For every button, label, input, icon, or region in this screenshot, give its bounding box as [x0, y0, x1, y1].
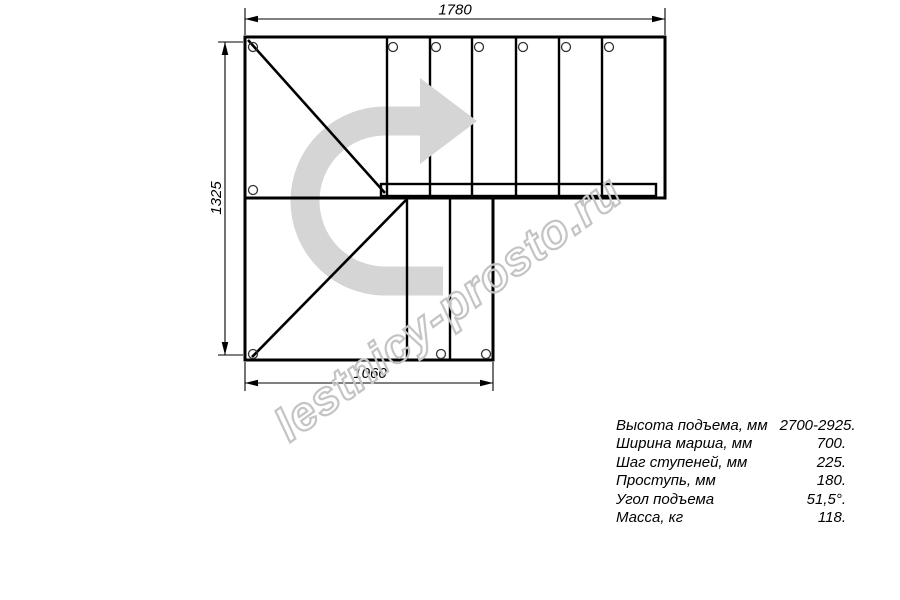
dimension-left: 1325: [208, 42, 243, 355]
spec-label: Шаг ступеней, мм: [616, 454, 747, 472]
spec-label: Угол подъема: [616, 491, 714, 509]
spec-value: 2700-2925.: [780, 417, 856, 435]
dimension-top: 1780: [245, 2, 665, 36]
spec-value: 51,5°.: [807, 491, 846, 509]
spec-value: 180.: [817, 472, 846, 490]
spec-row-width: Ширина марша, мм 700.: [616, 435, 846, 453]
spec-label: Проступь, мм: [616, 472, 716, 490]
dimension-bottom-label: 1060: [353, 365, 387, 382]
spec-label: Ширина марша, мм: [616, 435, 752, 453]
spec-row-mass: Масса, кг 118.: [616, 509, 846, 527]
dimension-left-label: 1325: [208, 181, 225, 215]
specs-table: Высота подъема, мм 2700-2925. Ширина мар…: [616, 417, 846, 527]
spec-row-height: Высота подъема, мм 2700-2925.: [616, 417, 846, 435]
spec-value: 700.: [817, 435, 846, 453]
spec-value: 118.: [818, 509, 846, 527]
spec-label: Высота подъема, мм: [616, 417, 768, 435]
spec-label: Масса, кг: [616, 509, 683, 527]
spec-row-tread: Проступь, мм 180.: [616, 472, 846, 490]
stringer-strip: [381, 184, 656, 196]
spec-row-angle: Угол подъема 51,5°.: [616, 491, 846, 509]
spec-value: 225.: [817, 454, 846, 472]
direction-arrow-head-icon: [420, 78, 477, 164]
dimension-top-label: 1780: [438, 2, 472, 19]
spec-row-step: Шаг ступеней, мм 225.: [616, 454, 846, 472]
dimension-bottom: 1060: [245, 362, 493, 391]
stair-plan-canvas: 1780 1325 1060 lestnicy-prosto.ru Высота…: [0, 0, 900, 600]
